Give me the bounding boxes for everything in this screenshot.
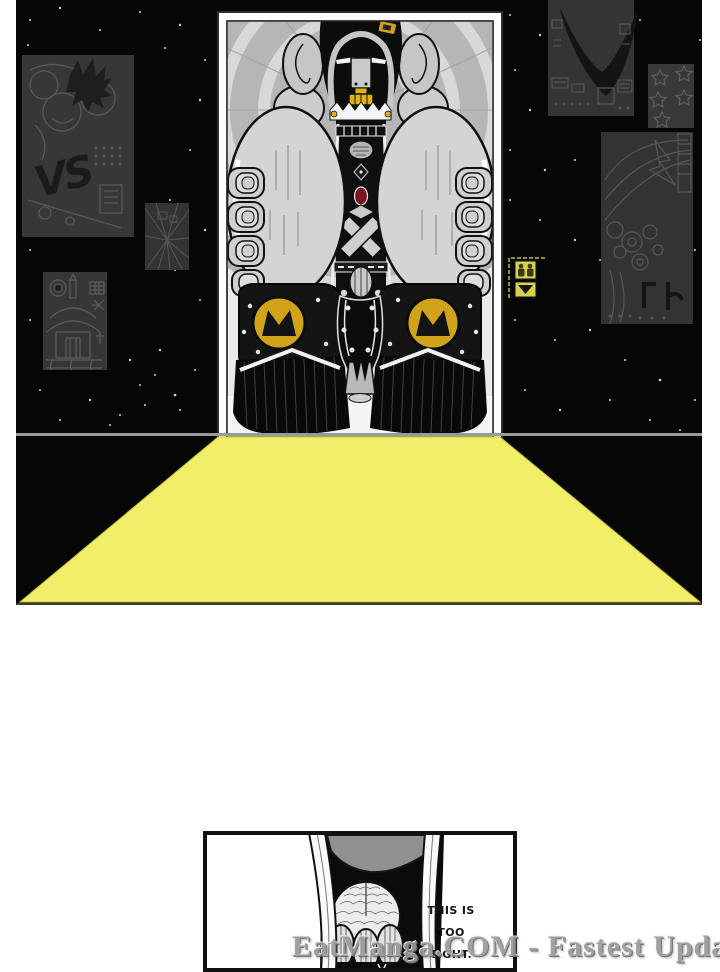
crown-m-logo-icon bbox=[253, 297, 305, 349]
red-jewel bbox=[355, 187, 368, 205]
manga-artwork: VS bbox=[0, 0, 720, 972]
panel-elevator-hall: VS bbox=[16, 0, 702, 605]
robot-head bbox=[320, 12, 402, 122]
poster-doodles bbox=[601, 132, 693, 324]
crown-m-logo-icon bbox=[407, 297, 459, 349]
poster-vs: VS bbox=[22, 55, 134, 237]
left-sneaker bbox=[233, 284, 350, 435]
poster-pagoda bbox=[43, 272, 107, 370]
nose bbox=[351, 58, 371, 88]
right-sneaker bbox=[370, 284, 487, 435]
speech-line-1: THIS IS bbox=[408, 905, 494, 917]
site-watermark: EatManga.COM - Fastest Updates bbox=[292, 930, 720, 964]
left-ear bbox=[283, 34, 323, 94]
right-ear bbox=[399, 34, 439, 94]
poster-rays bbox=[145, 203, 189, 270]
manga-page: VS bbox=[0, 0, 720, 972]
poster-stars bbox=[648, 64, 694, 128]
floor-line bbox=[16, 433, 702, 436]
poster-plant bbox=[548, 0, 638, 116]
